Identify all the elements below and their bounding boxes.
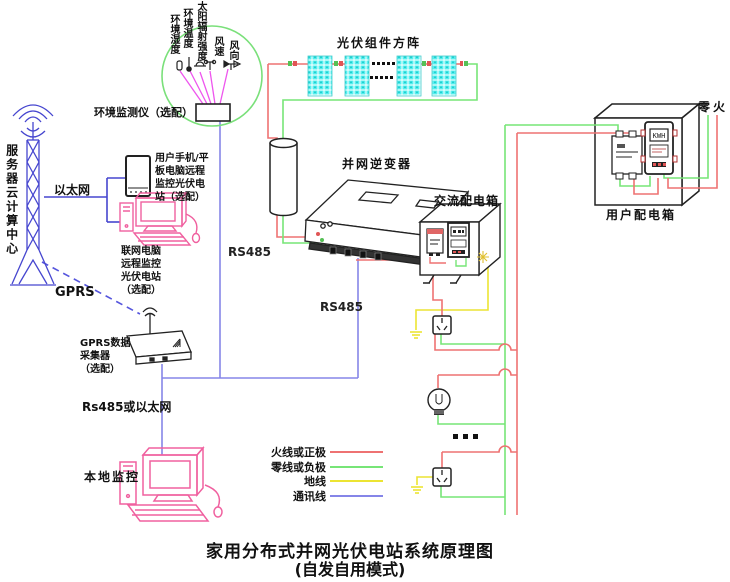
ground-wires bbox=[368, 248, 488, 493]
lamp-icon bbox=[428, 389, 450, 415]
gprs-label: GPRS bbox=[55, 285, 95, 302]
pv-panel bbox=[308, 56, 332, 96]
gprs-collector-icon bbox=[127, 308, 191, 364]
rs485-label-env: RS485 bbox=[228, 245, 271, 261]
phone-label: 用户手机/平 板电脑远程 监控光伏电 站（选配） bbox=[155, 152, 209, 204]
pv-panel bbox=[397, 56, 421, 96]
sensor-label-humidity: 环境湿度 bbox=[167, 14, 180, 54]
pv-array-label: 光伏组件方阵 bbox=[337, 36, 421, 52]
rs485-label-inverter: RS485 bbox=[320, 300, 363, 316]
inverter-label: 并网逆变器 bbox=[342, 157, 412, 173]
sensor-label-wind-direction: 风向 bbox=[226, 40, 239, 60]
box-leg bbox=[450, 275, 461, 283]
server-cloud-label: 服务器云计算中心 bbox=[3, 144, 19, 256]
ac-meter-icon bbox=[448, 223, 469, 257]
pv-panel bbox=[345, 56, 369, 96]
inverter-dc-minus-terminal bbox=[320, 238, 324, 242]
diagram-subtitle: (自发自用模式) bbox=[120, 560, 580, 581]
sensor-label-irradiance: 太阳辐射强度 bbox=[194, 1, 207, 61]
legend-label-neutral: 零线或负极 bbox=[252, 461, 326, 475]
env-monitor-box bbox=[196, 104, 230, 121]
thermometer-icon bbox=[187, 57, 191, 71]
legend-lines bbox=[330, 452, 383, 496]
local-monitor-label: 本地监控 bbox=[84, 470, 140, 486]
outlet-icon bbox=[433, 468, 451, 486]
ac-box-label: 交流配电箱 bbox=[434, 194, 499, 210]
meter-display: KWH bbox=[653, 132, 666, 140]
gprs-collector-label: GPRS数据 采集器 （选配） bbox=[80, 337, 130, 376]
legend-label-comm: 通讯线 bbox=[252, 490, 326, 504]
circuit-ellipsis bbox=[453, 434, 478, 439]
humidity-sensor-icon bbox=[177, 61, 182, 70]
pv-panel bbox=[432, 56, 456, 96]
rs485-or-ethernet-label: Rs485或以太网 bbox=[82, 400, 171, 416]
user-meter-icon: KWH bbox=[641, 122, 677, 174]
user-box-label: 用户配电箱 bbox=[606, 208, 676, 224]
neutral-live-label: 零火 bbox=[698, 100, 728, 116]
user-breaker-icon bbox=[612, 131, 642, 179]
ac-breaker-icon bbox=[427, 229, 443, 256]
sensor-label-temperature: 环境温度 bbox=[180, 8, 193, 48]
anemometer-icon bbox=[204, 60, 215, 70]
wind-vane-icon bbox=[224, 61, 240, 70]
dc-isolator-icon bbox=[270, 139, 297, 216]
phone-icon bbox=[126, 156, 150, 196]
diagram-canvas: KWH bbox=[0, 0, 730, 582]
legend-label-ground: 地线 bbox=[252, 475, 326, 489]
ethernet-label: 以太网 bbox=[54, 183, 90, 199]
sensor-wires bbox=[180, 69, 228, 104]
remote-pc-label: 联网电脑 远程监控 光伏电站 （选配） bbox=[121, 245, 161, 297]
sensor-label-wind-speed: 风速 bbox=[211, 36, 224, 56]
legend-label-live: 火线或正极 bbox=[252, 446, 326, 460]
outlet-icon bbox=[433, 316, 451, 334]
inverter-dc-plus-terminal bbox=[316, 232, 320, 236]
diagram-page: KWH 环境湿度 环境温度 太阳辐射强度 风速 风向 环境监测仪（选配） 服务器… bbox=[0, 0, 730, 582]
env-monitor-label: 环境监测仪（选配） bbox=[88, 106, 193, 120]
